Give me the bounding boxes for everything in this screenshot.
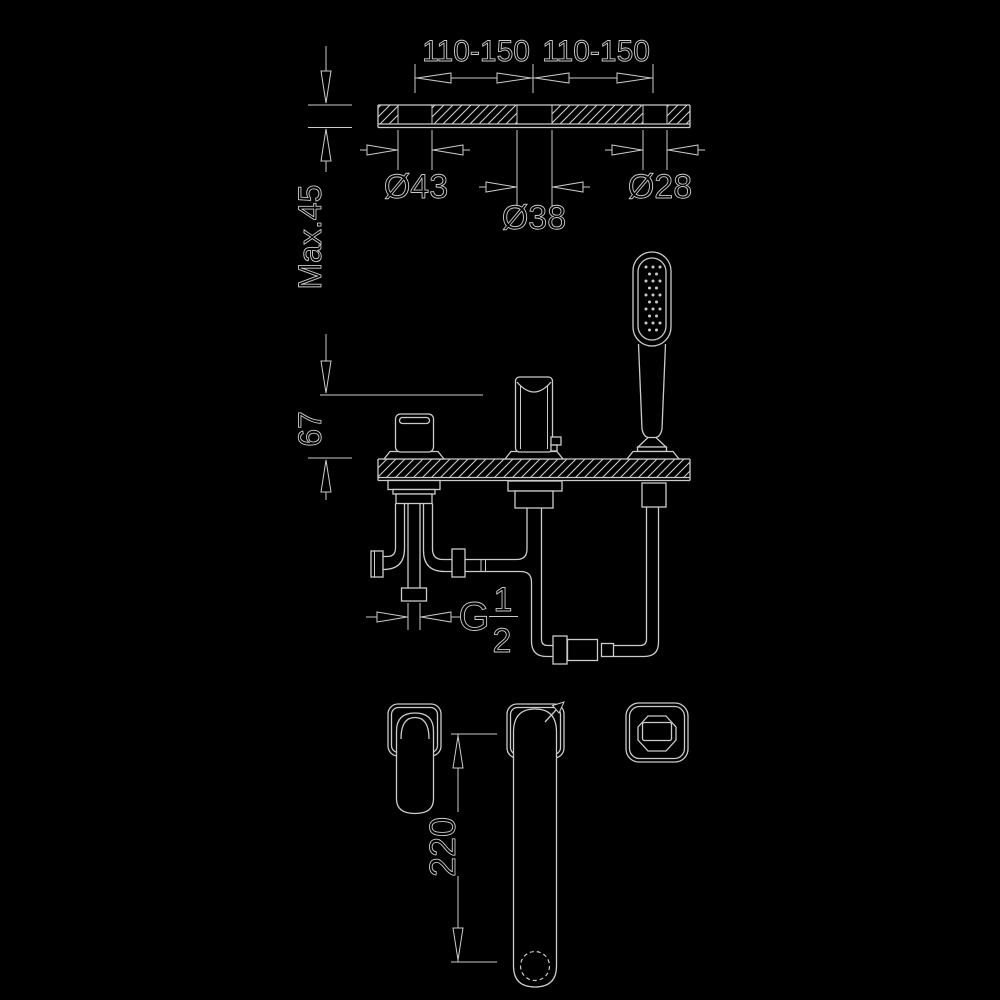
technical-drawing: 110-150 110-150 Max.45 Ø43 Ø38 Ø28 67 <box>0 0 1000 1000</box>
handle-underdeck-assembly <box>371 481 486 602</box>
spout-reach-label: 220 <box>422 817 463 877</box>
spout-height-label: 67 <box>292 411 328 447</box>
thread-letter: G <box>458 595 489 639</box>
dimension-hole-dia-38: Ø38 <box>479 130 590 237</box>
thread-numerator: 1 <box>494 581 513 619</box>
dimension-span-110-150: 110-150 110-150 <box>415 35 653 93</box>
dia-43-label: Ø43 <box>384 168 448 206</box>
spout-side-view <box>505 377 563 459</box>
deck-thickness-label: Max.45 <box>292 185 328 290</box>
spout-top-view <box>507 702 564 987</box>
span-left-label: 110-150 <box>422 35 530 68</box>
dia-28-label: Ø28 <box>628 168 692 206</box>
span-right-label: 110-150 <box>542 35 650 68</box>
deck-cross-section-top <box>378 105 690 128</box>
deck-cross-section-side <box>378 459 690 481</box>
thread-denominator: 2 <box>493 622 512 660</box>
dimension-hole-dia-43: Ø43 <box>360 130 470 206</box>
handle-top-view <box>388 704 441 814</box>
dimension-thread-g-half: G 1 2 <box>366 581 518 660</box>
dimension-deck-thickness: Max.45 <box>292 46 352 289</box>
shower-holder-top-view <box>626 703 688 762</box>
dia-38-label: Ø38 <box>502 199 566 237</box>
shower-hose-underdeck <box>614 483 667 657</box>
hand-shower-side-view <box>627 252 679 459</box>
handle-side-view <box>384 414 444 459</box>
dimension-hole-dia-28: Ø28 <box>605 130 705 206</box>
